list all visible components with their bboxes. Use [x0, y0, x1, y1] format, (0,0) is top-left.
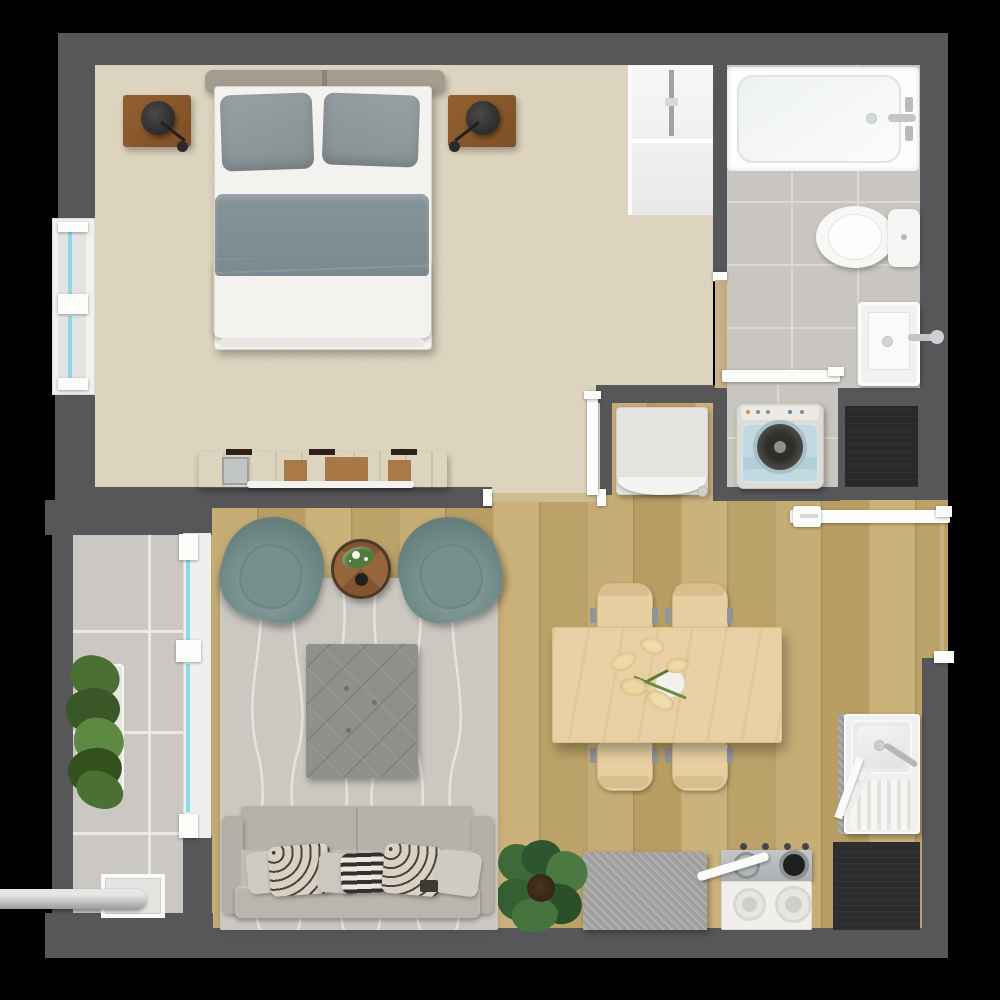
- bathtub-faucet-spout: [888, 114, 916, 122]
- sofa-back-seam: [356, 808, 358, 852]
- north-wall: [58, 33, 948, 65]
- shower-drain: [882, 336, 893, 347]
- balcony-west-wall: [52, 533, 73, 933]
- floor-plan-canvas: [0, 0, 1000, 1000]
- bathtub-drain: [866, 113, 877, 124]
- washer-knob-1: [746, 410, 750, 414]
- window-bottom-sash: [58, 378, 88, 390]
- side-table-flower-dots: [352, 551, 360, 559]
- balcony-door-bracket-top: [179, 534, 198, 560]
- balcony-door-bracket-bottom: [179, 814, 198, 838]
- dresser-tray-1: [284, 460, 307, 483]
- washer-knob-4: [788, 410, 792, 414]
- sofa-pillow-plain-3: [433, 848, 483, 898]
- chair-frame-nub-1: [590, 608, 596, 623]
- stove-knob-2: [762, 843, 769, 850]
- chair-frame-nub-2: [652, 608, 658, 623]
- shower-faucet-knob: [930, 330, 944, 344]
- bed-pillow-right: [322, 92, 420, 167]
- bathtub-faucet-handle-top: [905, 97, 913, 112]
- washer-drum-cap: [774, 441, 786, 453]
- sofa-remote: [420, 880, 438, 892]
- entry-jamb-top: [936, 506, 952, 517]
- balcony-drain-pipe: [0, 889, 146, 909]
- ottoman-button-1: [344, 686, 349, 691]
- bedroom-door-jamb-left: [483, 489, 492, 506]
- service-shaft: [845, 406, 918, 487]
- ottoman-button-2: [372, 700, 377, 705]
- stove-knob-1: [740, 843, 747, 850]
- washer-knob-2: [756, 410, 760, 414]
- balcony-door-south-wall: [183, 836, 212, 933]
- dresser-soundbar: [247, 481, 414, 488]
- laundry-south-wall: [713, 487, 840, 501]
- chair-frame-nub-3: [665, 608, 671, 623]
- ottoman: [306, 644, 418, 778]
- bathroom-sliding-door: [722, 370, 840, 382]
- west-wall-lower: [55, 393, 95, 493]
- window-top-sash: [58, 222, 88, 232]
- balcony-door-glass-upper: [186, 548, 190, 640]
- stove-knob-3: [784, 843, 791, 850]
- chair-frame-nub-7: [665, 748, 671, 763]
- stove-burner-front-left-ring: [742, 897, 757, 912]
- bedroom-door-leaf: [587, 391, 598, 495]
- dresser-tv-box: [222, 457, 249, 485]
- bedroom-door-jamb-right: [597, 489, 606, 506]
- ottoman-button-3: [346, 728, 351, 733]
- dining-chair-bottom-left-back: [599, 776, 649, 788]
- bedroom-bathroom-wall: [713, 33, 727, 282]
- bathtub-faucet-handle-bottom: [905, 126, 913, 141]
- balcony-north-wall: [45, 500, 212, 535]
- window-glass-upper: [68, 232, 72, 294]
- sofa-pillow-striped: [340, 852, 387, 894]
- entry-door-handle-notch: [800, 514, 818, 518]
- entry-floor-edge: [940, 518, 944, 654]
- side-table-cup: [355, 573, 368, 586]
- chair-frame-nub-4: [727, 608, 733, 623]
- monstera-pot: [527, 874, 555, 902]
- toilet-flush-button: [901, 234, 907, 240]
- bed-duvet-lower: [213, 258, 431, 338]
- entry-jamb-bottom: [934, 651, 954, 663]
- toilet-seat: [828, 214, 882, 260]
- chair-frame-nub-6: [652, 748, 658, 763]
- refrigerator-hinge: [697, 486, 708, 497]
- dark-counter: [833, 842, 920, 930]
- chair-frame-nub-5: [590, 748, 596, 763]
- bedroom-door-threshold: [490, 493, 600, 502]
- closet-rail-bracket: [665, 98, 678, 106]
- bathroom-sliding-door-cap: [828, 367, 844, 376]
- balcony-door-glass-lower: [186, 664, 190, 812]
- granite-counter: [583, 852, 707, 930]
- west-wall-upper: [58, 33, 95, 218]
- washer-knob-5: [800, 410, 804, 414]
- stove-knob-4: [802, 843, 809, 850]
- balcony-door-bracket-middle: [176, 640, 201, 662]
- washer-knob-3: [766, 410, 770, 414]
- dining-chair-top-left-back: [599, 584, 649, 596]
- wall-lamp-right-knob: [449, 141, 460, 152]
- stove-burner-back-right: [779, 850, 809, 880]
- dining-chair-bottom-right-back: [674, 776, 724, 788]
- wall-lamp-left-knob: [177, 141, 188, 152]
- east-wall-lower: [922, 658, 948, 932]
- stove-burner-front-right-ring: [785, 896, 802, 913]
- chair-frame-nub-8: [727, 748, 733, 763]
- bedroom-door-hinge-cap: [584, 391, 601, 399]
- closet-divider: [628, 139, 713, 143]
- dining-chair-top-right-back: [674, 584, 724, 596]
- niche-north-wall: [596, 385, 727, 403]
- niche-west-wall: [600, 396, 612, 495]
- window-center-mullion: [58, 294, 88, 314]
- bed-foot-sheet: [220, 338, 424, 347]
- bed-pillow-left: [220, 92, 315, 171]
- washer-control-panel: [741, 406, 819, 420]
- niche-east-wall: [713, 400, 727, 495]
- window-glass-lower: [68, 316, 72, 378]
- dresser-tray-3: [388, 460, 411, 483]
